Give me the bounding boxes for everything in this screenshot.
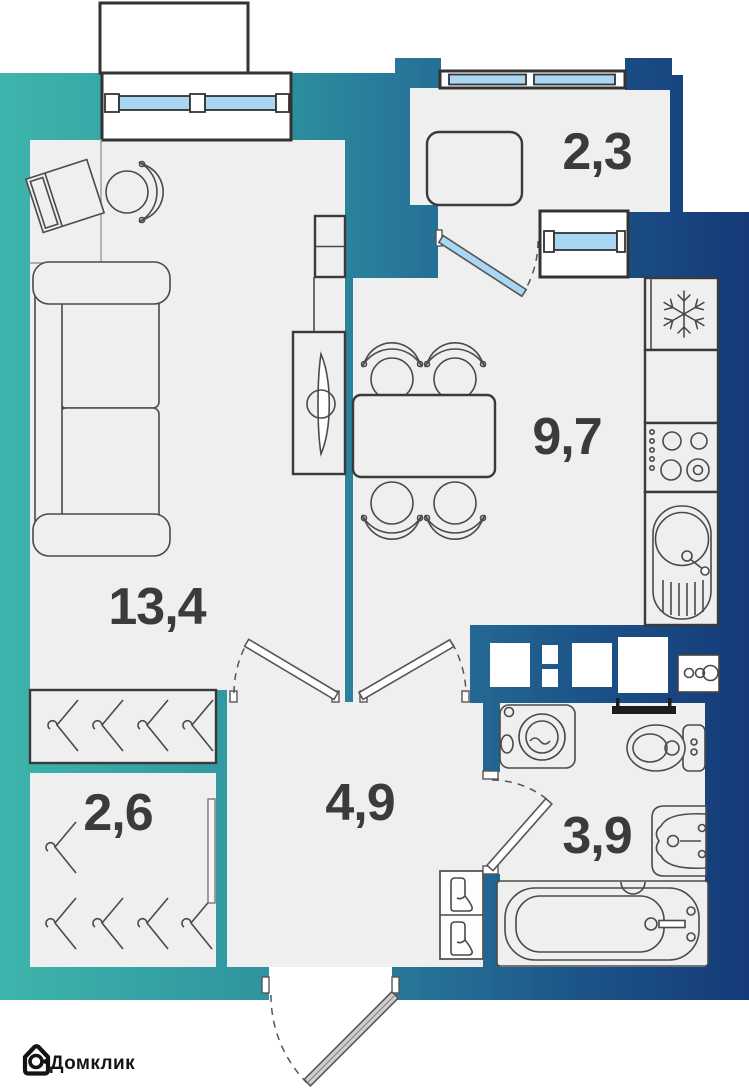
outside-area xyxy=(441,58,625,72)
label-hallway-area: 4,9 xyxy=(290,776,430,830)
wall xyxy=(625,75,683,90)
floor-plan: 13,4 9,7 2,3 2,6 4,9 3,9 Домклик xyxy=(0,0,749,1089)
wall xyxy=(0,73,345,140)
outside-area xyxy=(0,1000,749,1089)
wall xyxy=(216,690,227,967)
balcony-window xyxy=(440,71,625,88)
wall xyxy=(628,212,749,278)
wall xyxy=(345,73,410,278)
outside-area xyxy=(683,90,749,212)
label-living-room-area: 13,4 xyxy=(87,580,227,634)
label-bathroom-area: 3,9 xyxy=(527,809,667,863)
wall xyxy=(395,58,441,88)
closet xyxy=(30,690,216,763)
label-wardrobe-area: 2,6 xyxy=(48,786,188,840)
outside-area xyxy=(683,75,749,90)
entry-opening xyxy=(269,967,392,1000)
label-balcony-area: 2,3 xyxy=(527,125,667,179)
wall xyxy=(410,205,438,278)
wall xyxy=(483,703,500,772)
wall xyxy=(483,874,500,967)
wall xyxy=(718,278,749,625)
wall xyxy=(345,278,353,702)
wall xyxy=(470,625,749,703)
wall xyxy=(705,703,749,967)
domclick-logo-text: Домклик xyxy=(50,1053,135,1075)
wall xyxy=(392,967,749,1000)
wall xyxy=(0,967,269,1000)
floor-kitchen-ext xyxy=(353,625,470,692)
outside-area xyxy=(672,58,749,75)
wall xyxy=(670,90,683,212)
wall xyxy=(30,763,216,773)
wall xyxy=(0,73,30,1000)
wall xyxy=(625,58,672,75)
outside-area xyxy=(0,58,395,73)
label-kitchen-area: 9,7 xyxy=(497,410,637,464)
floor-bathroom-doorway xyxy=(483,772,500,874)
